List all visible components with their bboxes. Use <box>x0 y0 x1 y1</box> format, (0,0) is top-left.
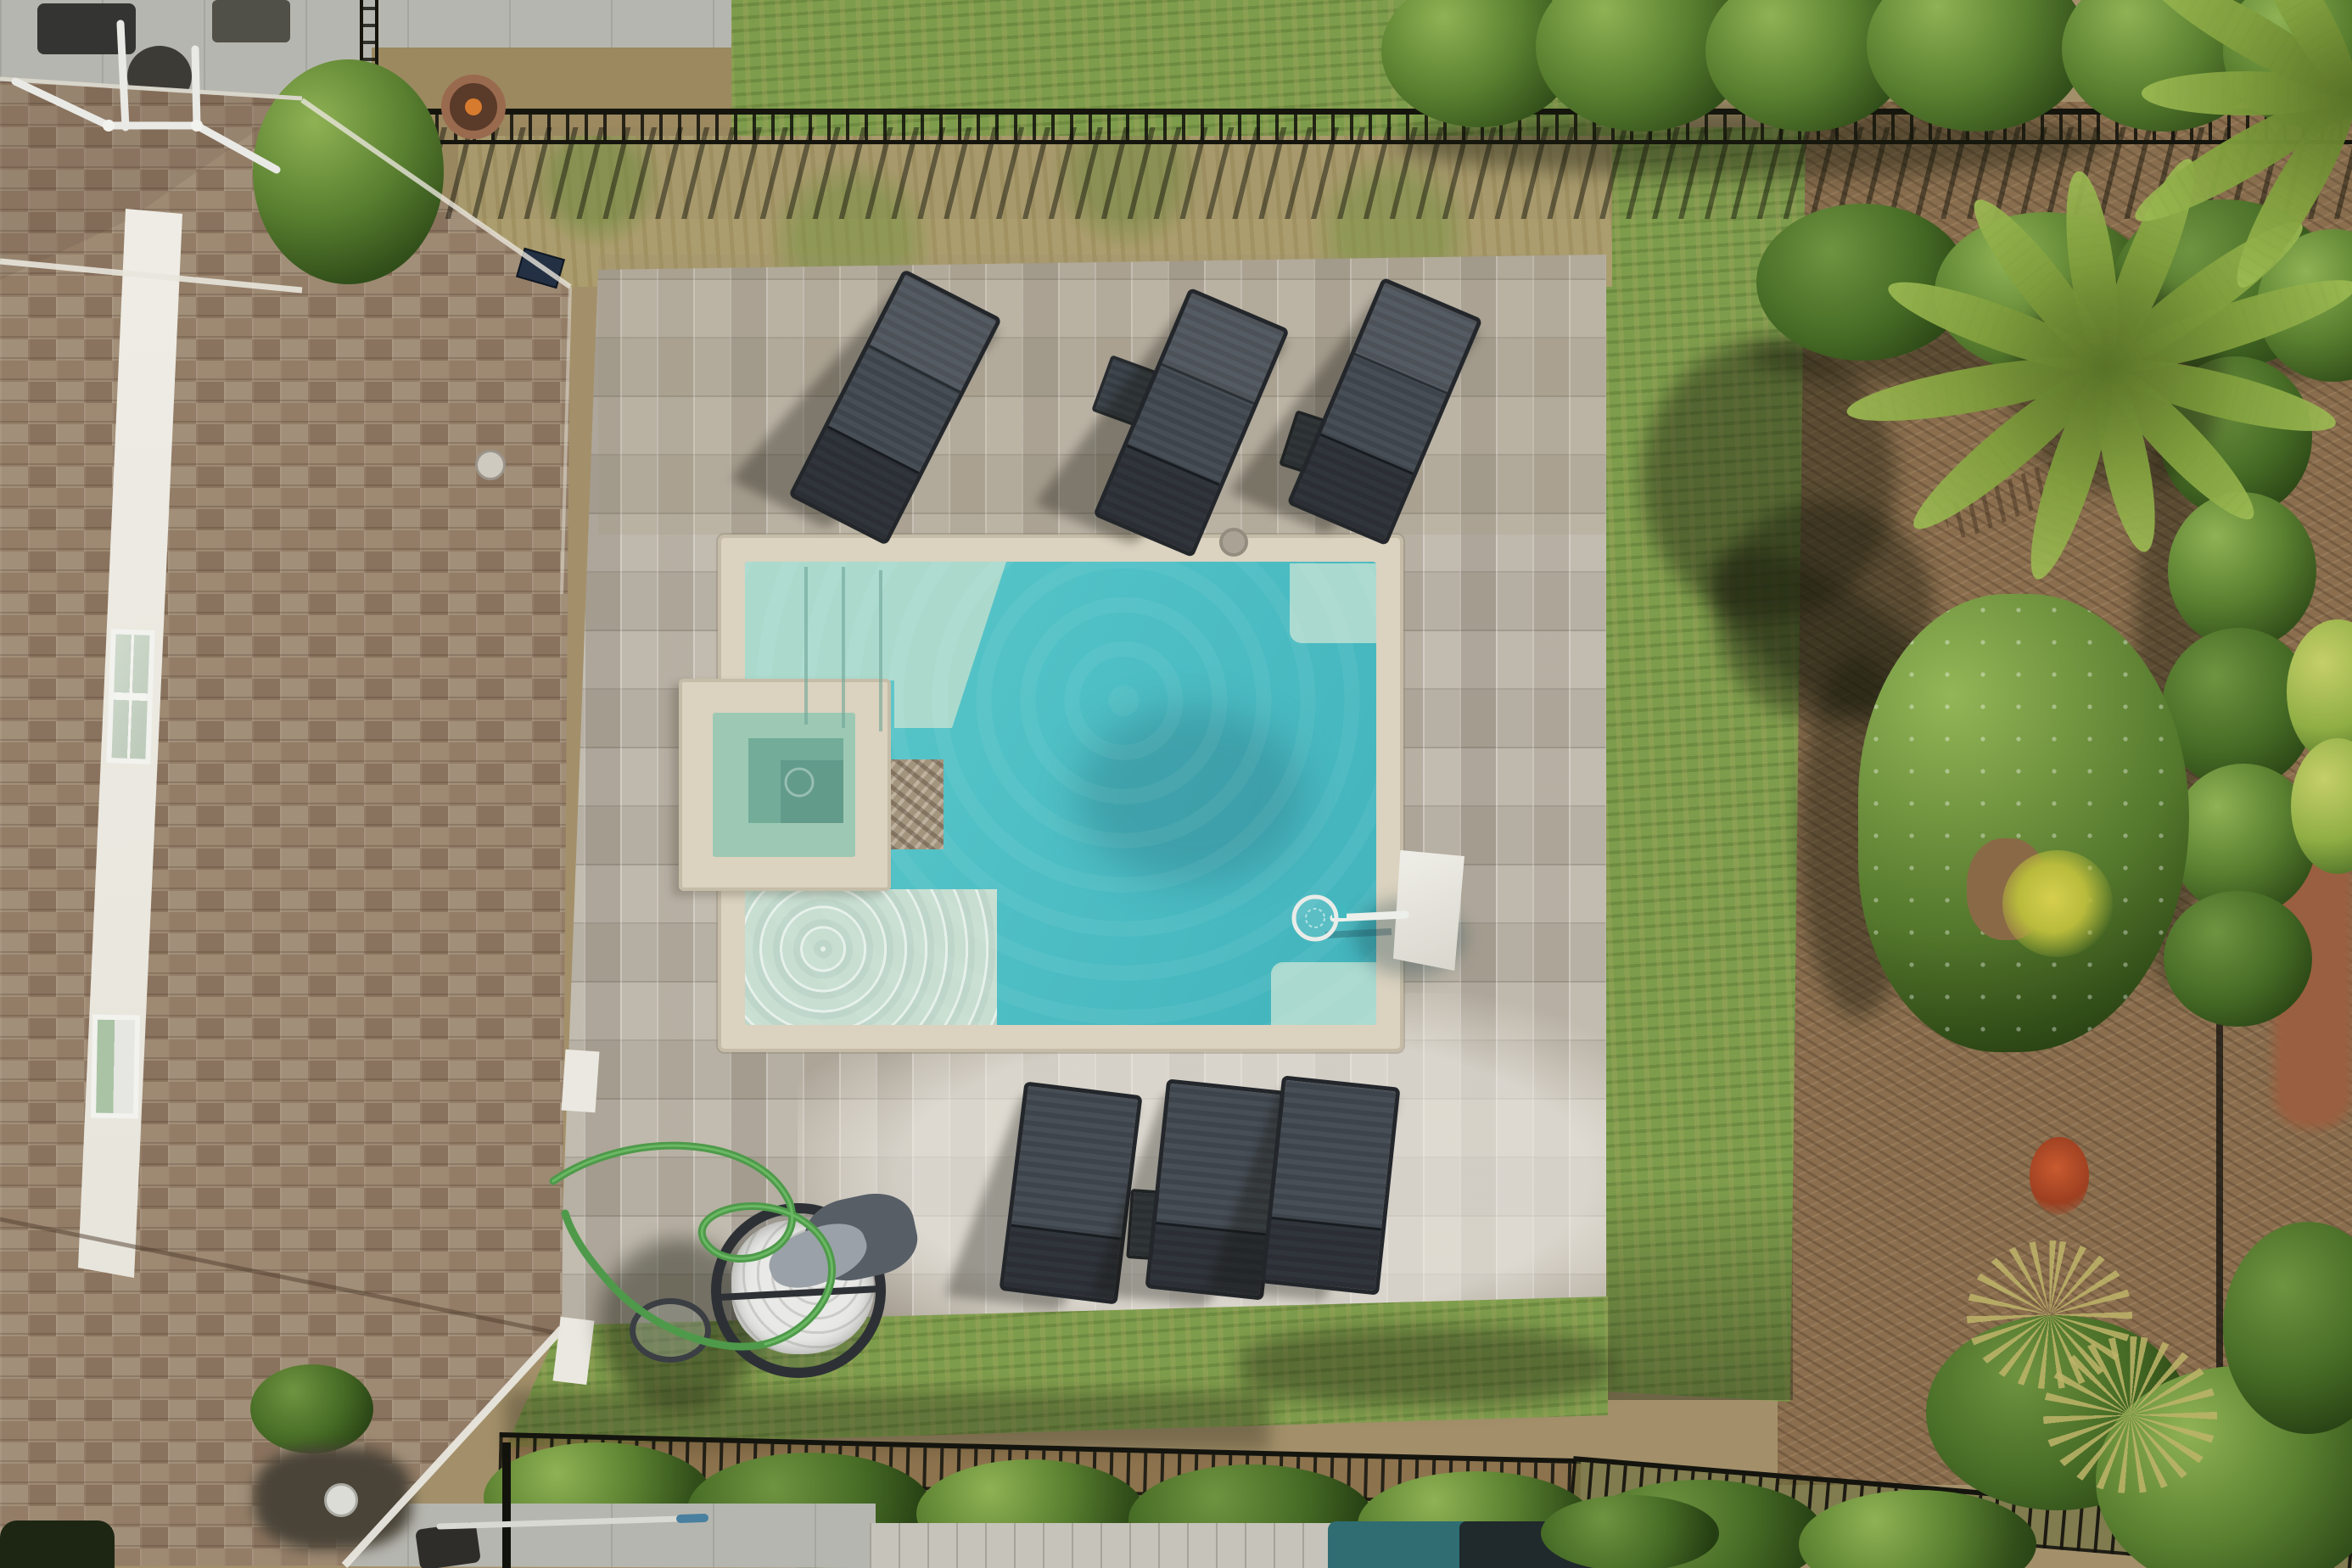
roof-hip-ridge-line <box>0 1219 557 1333</box>
pool-pole-tip <box>680 1518 704 1519</box>
spa-jet-ring <box>786 769 813 796</box>
pipe-joint <box>103 120 115 132</box>
pvc-pipes <box>15 24 277 170</box>
linework-overlay <box>0 0 2352 1568</box>
roof-edge-fascia-line <box>302 100 570 287</box>
garden-hose <box>553 1145 832 1347</box>
pool-step-lines <box>806 567 881 731</box>
roof-bottom-fascia-line <box>344 1329 562 1565</box>
pipe-joint <box>191 120 203 132</box>
pool-cleaning-pole <box>440 1519 680 1526</box>
hoop-rim <box>1294 897 1336 939</box>
roof-gutter-line <box>0 261 302 290</box>
roof-edge-fascia-line-2 <box>562 287 570 594</box>
aerial-backyard-photo <box>0 0 2352 1568</box>
hoop-pole-shadow <box>1325 932 1392 935</box>
